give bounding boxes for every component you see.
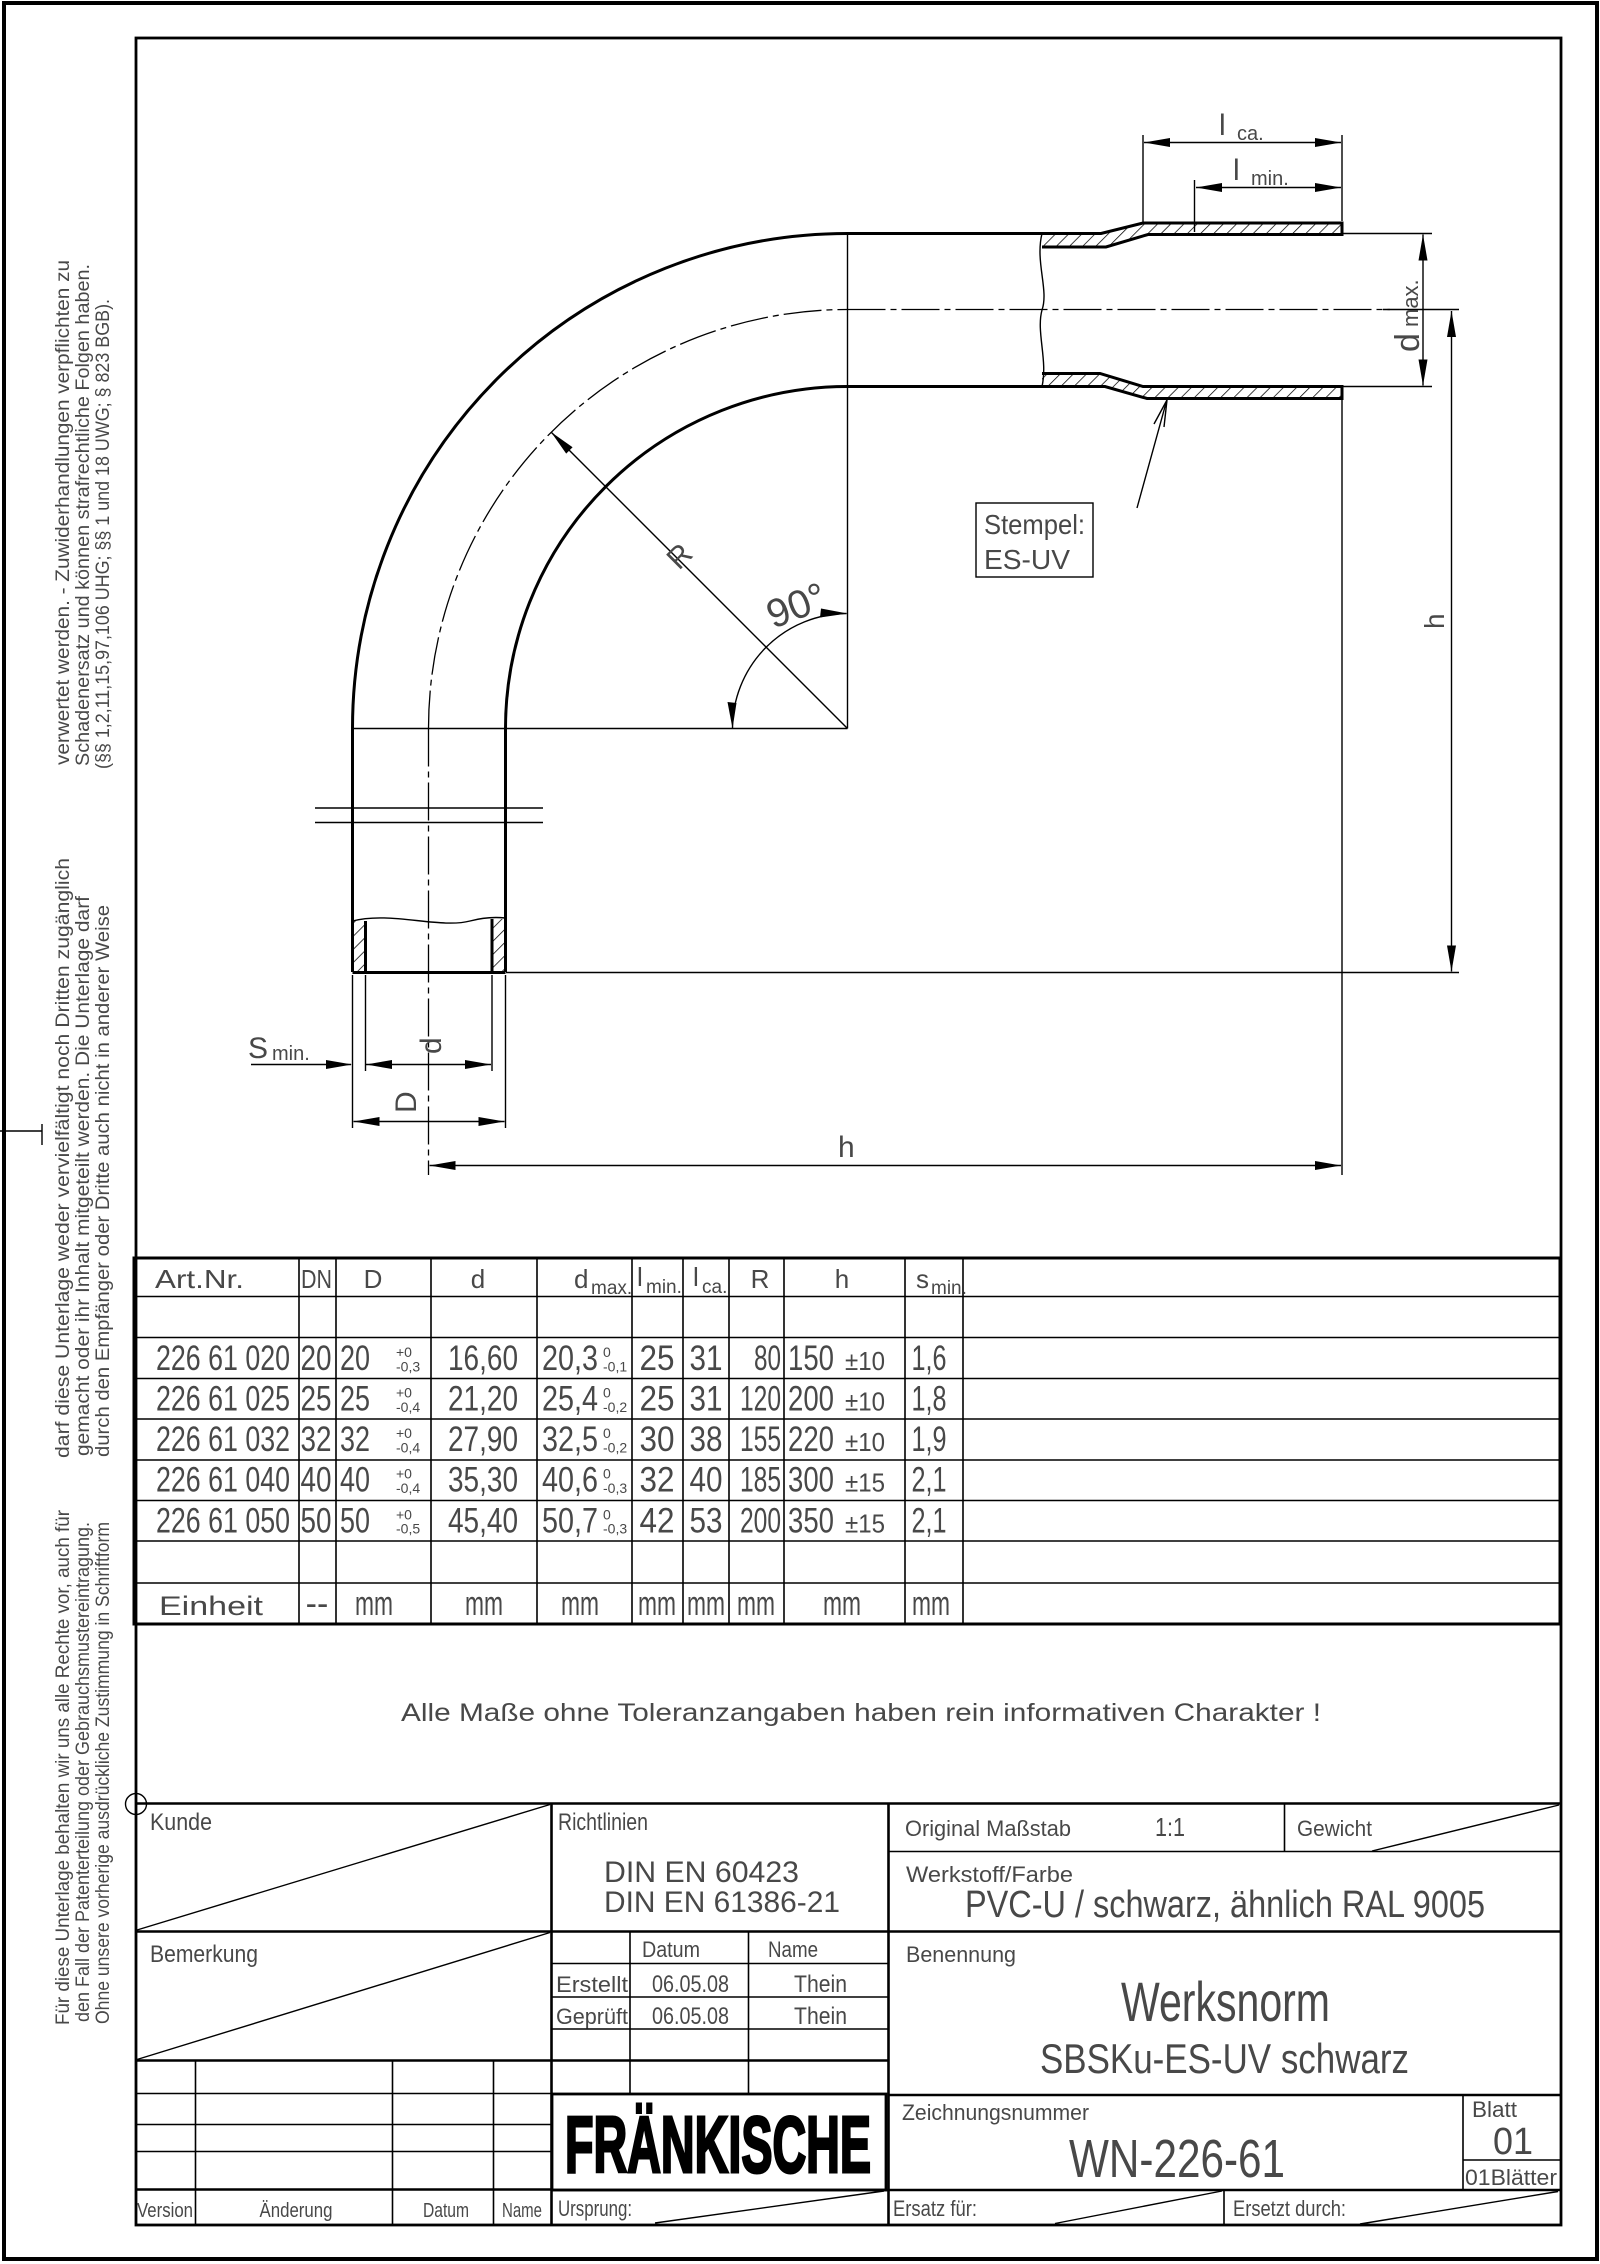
- svg-text:±10: ±10: [845, 1387, 885, 1417]
- svg-text:DIN EN 60423: DIN EN 60423: [604, 1856, 799, 1889]
- svg-text:h: h: [835, 1264, 849, 1294]
- svg-text:Ersetzt durch:: Ersetzt durch:: [1233, 2196, 1346, 2221]
- svg-text:--: --: [306, 1585, 329, 1623]
- svg-text:Ohne unsere vorherige ausdrück: Ohne unsere vorherige ausdrückliche Zust…: [93, 1522, 114, 2024]
- svg-text:min.: min.: [646, 1277, 682, 1298]
- svg-text:25: 25: [640, 1380, 675, 1419]
- svg-text:Ursprung:: Ursprung:: [558, 2196, 632, 2221]
- svg-text:Name: Name: [768, 1937, 818, 1962]
- svg-text:DIN EN 61386-21: DIN EN 61386-21: [604, 1886, 840, 1919]
- svg-text:D: D: [390, 1091, 423, 1113]
- svg-text:25: 25: [301, 1380, 332, 1419]
- svg-text:1,6: 1,6: [912, 1339, 947, 1378]
- svg-text:Gewicht: Gewicht: [1297, 1816, 1372, 1841]
- svg-text:20: 20: [301, 1339, 332, 1378]
- svg-text:l: l: [637, 1262, 643, 1292]
- svg-text:l: l: [1233, 154, 1240, 187]
- svg-text:32,5: 32,5: [542, 1420, 598, 1459]
- svg-text:Art.Nr.: Art.Nr.: [155, 1264, 244, 1294]
- svg-text:DN: DN: [301, 1264, 332, 1294]
- svg-text:Benennung: Benennung: [906, 1942, 1016, 1967]
- svg-text:darf diese Unterlage weder ver: darf diese Unterlage weder vervielfältig…: [53, 858, 74, 1458]
- svg-text:Alle Maße ohne Toleranzangaben: Alle Maße ohne Toleranzangaben haben rei…: [401, 1699, 1321, 1727]
- svg-text:max.: max.: [591, 1278, 632, 1299]
- svg-text:2,1: 2,1: [912, 1502, 947, 1541]
- svg-text:S: S: [248, 1032, 268, 1065]
- svg-text:45,40: 45,40: [448, 1502, 518, 1541]
- svg-text:Geprüft: Geprüft: [556, 2004, 628, 2029]
- svg-text:Erstellt: Erstellt: [556, 1972, 628, 1997]
- svg-text:Werksnorm: Werksnorm: [1121, 1970, 1330, 2033]
- svg-text:53: 53: [690, 1502, 723, 1541]
- svg-text:40,6: 40,6: [542, 1461, 598, 1500]
- svg-text:Richtlinien: Richtlinien: [558, 1809, 648, 1836]
- svg-text:Für diese Unterlage behalten w: Für diese Unterlage behalten wir uns all…: [53, 1509, 74, 2025]
- svg-text:-0,4: -0,4: [396, 1399, 420, 1415]
- svg-text:40: 40: [340, 1461, 370, 1500]
- svg-text:Schadenersatz und können straf: Schadenersatz und können strafrechtliche…: [73, 264, 94, 766]
- svg-text:1,8: 1,8: [912, 1380, 947, 1419]
- svg-text:Ersatz für:: Ersatz für:: [893, 2196, 977, 2221]
- svg-text:-0,2: -0,2: [603, 1399, 627, 1415]
- svg-text:25: 25: [340, 1380, 370, 1419]
- svg-text:Bemerkung: Bemerkung: [150, 1941, 258, 1968]
- svg-text:PVC-U / schwarz, ähnlich RAL 9: PVC-U / schwarz, ähnlich RAL 9005: [965, 1884, 1485, 1926]
- svg-text:120: 120: [740, 1380, 781, 1419]
- svg-text:Thein: Thein: [794, 2003, 847, 2030]
- svg-text:40: 40: [301, 1461, 332, 1500]
- svg-text:32: 32: [340, 1420, 370, 1459]
- svg-text:226 61 050: 226 61 050: [156, 1502, 290, 1541]
- svg-text:226 61 025: 226 61 025: [156, 1380, 290, 1419]
- svg-text:226 61 032: 226 61 032: [156, 1420, 290, 1459]
- svg-text:50: 50: [340, 1502, 370, 1541]
- svg-text:25: 25: [640, 1339, 675, 1378]
- svg-text:min.: min.: [931, 1278, 967, 1299]
- svg-text:Kunde: Kunde: [150, 1809, 212, 1836]
- svg-text:Version: Version: [137, 2200, 193, 2222]
- svg-text:1,9: 1,9: [912, 1420, 947, 1459]
- svg-text:h: h: [1419, 613, 1450, 629]
- svg-text:-0,3: -0,3: [396, 1359, 420, 1375]
- svg-text:Stempel:: Stempel:: [984, 509, 1085, 540]
- svg-text:mm: mm: [687, 1585, 725, 1623]
- svg-text:35,30: 35,30: [448, 1461, 518, 1500]
- svg-text:06.05.08: 06.05.08: [652, 1971, 729, 1998]
- svg-text:Änderung: Änderung: [260, 2200, 333, 2222]
- svg-text:mm: mm: [355, 1585, 393, 1623]
- svg-text:min.: min.: [1251, 168, 1289, 190]
- svg-text:185: 185: [740, 1461, 781, 1500]
- svg-text:±10: ±10: [845, 1427, 885, 1457]
- svg-text:-0,5: -0,5: [396, 1521, 420, 1537]
- svg-text:38: 38: [690, 1420, 723, 1459]
- svg-text:31: 31: [690, 1339, 723, 1378]
- svg-text:Einheit: Einheit: [159, 1591, 264, 1621]
- svg-text:Original Maßstab: Original Maßstab: [905, 1816, 1071, 1841]
- svg-text:30: 30: [640, 1420, 675, 1459]
- svg-text:ca.: ca.: [1237, 123, 1264, 145]
- svg-text:01: 01: [1493, 2121, 1533, 2163]
- svg-text:16,60: 16,60: [448, 1339, 518, 1378]
- svg-text:mm: mm: [737, 1585, 775, 1623]
- svg-text:226 61 040: 226 61 040: [156, 1461, 290, 1500]
- svg-text:Zeichnungsnummer: Zeichnungsnummer: [902, 2100, 1089, 2125]
- svg-text:max.: max.: [1398, 279, 1423, 327]
- svg-text:-0,1: -0,1: [603, 1359, 627, 1375]
- svg-text:150: 150: [788, 1339, 834, 1378]
- svg-text:50,7: 50,7: [542, 1502, 598, 1541]
- svg-text:den Fall der Patenterteilung o: den Fall der Patenterteilung oder Gebrau…: [73, 1522, 94, 2022]
- svg-text:06.05.08: 06.05.08: [652, 2003, 729, 2030]
- svg-text:FRÄNKISCHE: FRÄNKISCHE: [565, 2100, 871, 2189]
- svg-text:-0,3: -0,3: [603, 1480, 627, 1496]
- svg-text:-0,4: -0,4: [396, 1480, 420, 1496]
- svg-text:80: 80: [754, 1339, 781, 1378]
- svg-text:50: 50: [301, 1502, 332, 1541]
- svg-text:1:1: 1:1: [1155, 1812, 1185, 1842]
- svg-text:Thein: Thein: [794, 1971, 847, 1998]
- svg-text:min.: min.: [272, 1043, 310, 1065]
- svg-text:32: 32: [640, 1461, 675, 1500]
- svg-text:SBSKu-ES-UV schwarz: SBSKu-ES-UV schwarz: [1040, 2035, 1409, 2082]
- svg-text:±15: ±15: [845, 1468, 885, 1498]
- svg-text:l: l: [1219, 109, 1226, 142]
- svg-text:42: 42: [640, 1502, 675, 1541]
- svg-text:WN-226-61: WN-226-61: [1069, 2129, 1285, 2189]
- svg-text:mm: mm: [912, 1585, 950, 1623]
- svg-text:20,3: 20,3: [542, 1339, 598, 1378]
- svg-text:21,20: 21,20: [448, 1380, 518, 1419]
- svg-text:-0,2: -0,2: [603, 1440, 627, 1456]
- svg-text:200: 200: [740, 1502, 781, 1541]
- svg-text:mm: mm: [823, 1585, 861, 1623]
- svg-text:25,4: 25,4: [542, 1380, 598, 1419]
- svg-text:ca.: ca.: [702, 1277, 727, 1298]
- svg-text:h: h: [838, 1131, 855, 1164]
- svg-text:Datum: Datum: [423, 2200, 469, 2222]
- svg-text:s: s: [916, 1264, 929, 1294]
- svg-text:gemacht oder ihr Inhalt mitget: gemacht oder ihr Inhalt mitgeteilt werde…: [73, 895, 94, 1456]
- svg-text:l: l: [693, 1262, 699, 1292]
- svg-text:mm: mm: [465, 1585, 503, 1623]
- svg-text:-0,3: -0,3: [603, 1521, 627, 1537]
- svg-text:mm: mm: [638, 1585, 676, 1623]
- svg-text:32: 32: [301, 1420, 332, 1459]
- svg-text:20: 20: [340, 1339, 370, 1378]
- svg-text:d: d: [415, 1037, 448, 1054]
- svg-text:-0,4: -0,4: [396, 1440, 420, 1456]
- svg-text:2,1: 2,1: [912, 1461, 947, 1500]
- svg-text:Name: Name: [502, 2200, 542, 2222]
- svg-text:226 61 020: 226 61 020: [156, 1339, 290, 1378]
- svg-text:R: R: [751, 1264, 770, 1294]
- svg-text:verwertet werden. - Zuwiderhan: verwertet werden. - Zuwiderhandlungen ve…: [53, 260, 74, 765]
- svg-text:155: 155: [740, 1420, 781, 1459]
- svg-text:27,90: 27,90: [448, 1420, 518, 1459]
- svg-text:d: d: [574, 1264, 588, 1294]
- svg-text:01Blätter: 01Blätter: [1465, 2165, 1557, 2190]
- svg-text:300: 300: [788, 1461, 834, 1500]
- svg-text:200: 200: [788, 1380, 834, 1419]
- svg-text:31: 31: [690, 1380, 723, 1419]
- svg-text:mm: mm: [561, 1585, 599, 1623]
- svg-text:40: 40: [690, 1461, 723, 1500]
- svg-text:Datum: Datum: [642, 1937, 700, 1962]
- svg-text:d: d: [471, 1264, 485, 1294]
- svg-text:D: D: [364, 1264, 383, 1294]
- svg-text:ES-UV: ES-UV: [984, 544, 1070, 575]
- svg-text:350: 350: [788, 1502, 834, 1541]
- svg-text:±15: ±15: [845, 1509, 885, 1539]
- svg-text:d: d: [1389, 333, 1427, 352]
- svg-text:±10: ±10: [845, 1346, 885, 1376]
- svg-text:(§§ 1,2,11,15,97,106 UHG; §§ 1: (§§ 1,2,11,15,97,106 UHG; §§ 1 und 18 UW…: [93, 299, 114, 769]
- svg-text:durch den Empfänger oder Dritt: durch den Empfänger oder Dritte auch nic…: [93, 905, 114, 1457]
- svg-text:Blatt: Blatt: [1472, 2097, 1517, 2122]
- svg-text:220: 220: [788, 1420, 834, 1459]
